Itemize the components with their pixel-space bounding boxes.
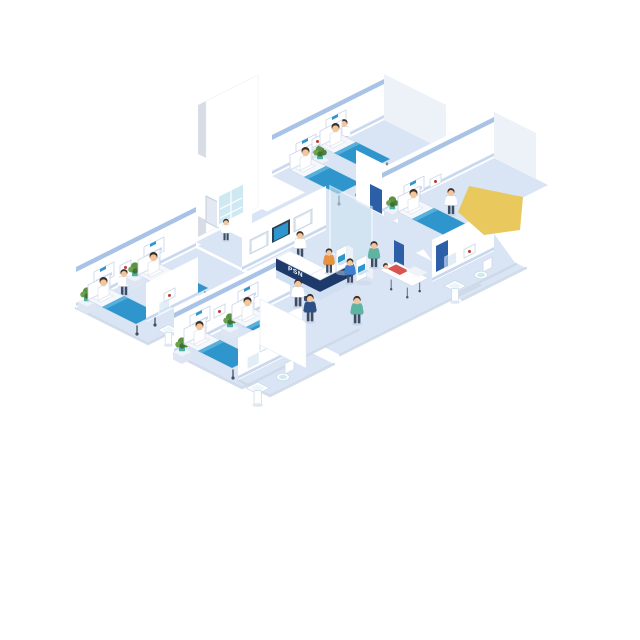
isometric-scene: PSN [0, 0, 640, 640]
door [206, 196, 218, 228]
hospital-illustration: PSN [0, 0, 640, 640]
